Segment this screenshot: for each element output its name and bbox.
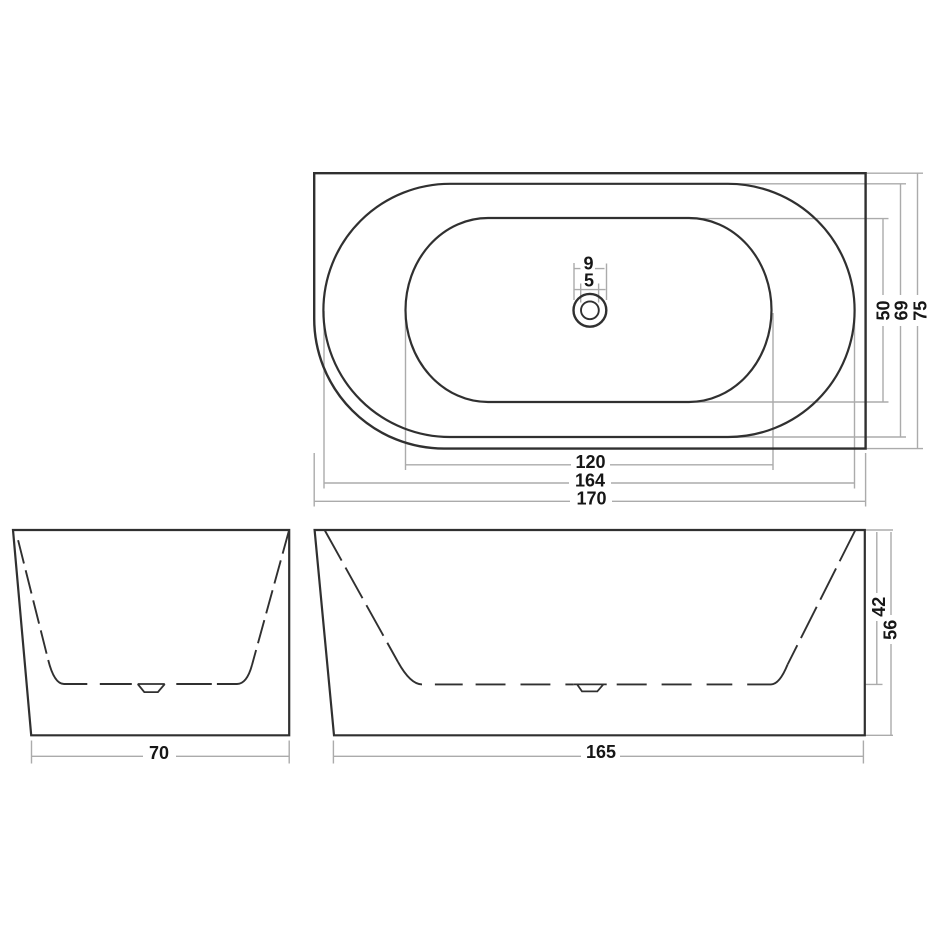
svg-text:120: 120 xyxy=(575,452,605,472)
svg-text:164: 164 xyxy=(575,471,605,491)
svg-text:50: 50 xyxy=(873,300,893,320)
svg-text:5: 5 xyxy=(584,271,594,291)
svg-text:170: 170 xyxy=(576,489,606,509)
svg-text:75: 75 xyxy=(911,301,931,321)
svg-text:42: 42 xyxy=(869,597,889,617)
svg-text:165: 165 xyxy=(586,742,616,762)
svg-text:69: 69 xyxy=(892,300,912,320)
svg-text:70: 70 xyxy=(149,743,169,763)
svg-text:56: 56 xyxy=(880,620,900,640)
